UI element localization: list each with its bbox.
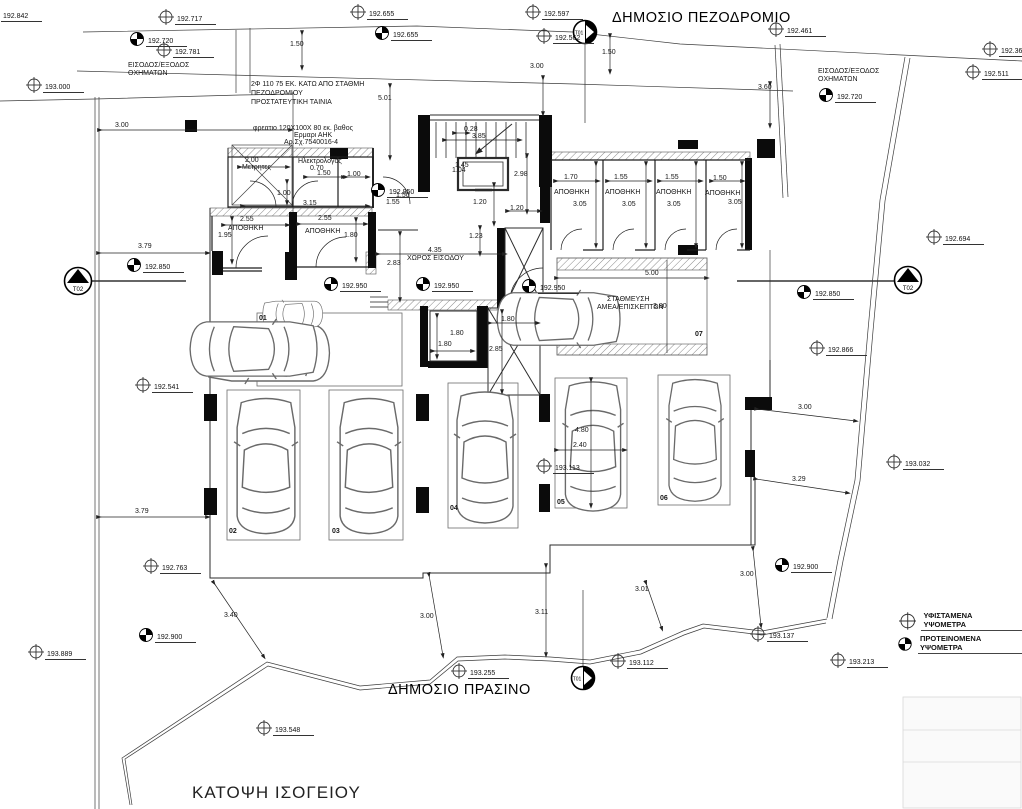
- proposed-elevation-marker: 192.655: [374, 25, 432, 41]
- legend-proposed: ΠΡΟΤΕΙΝΟΜΕΝΑ ΥΨΟΜΕΤΡΑ: [897, 634, 1022, 654]
- existing-elevation-icon: [899, 612, 916, 630]
- title-block-corner: [903, 697, 1021, 808]
- storage-r4-label: ΑΠΟΘΗΚΗ: [705, 190, 740, 198]
- public-green-label: ΔΗΜΟΣΙΟ ΠΡΑΣΙΝΟ: [388, 682, 531, 699]
- storage-r4-depth: 3.05: [728, 199, 742, 207]
- proposed-elevation-marker: 192.950: [415, 276, 473, 292]
- legend-existing: ΥΦΙΣΤΑΜΕΝΑ ΥΨΟΜΕΤΡΑ: [899, 611, 1022, 631]
- dim-123: 1.23: [469, 233, 483, 241]
- dim-120b: 1.20: [510, 205, 524, 213]
- dim-mid-155: 1.55: [386, 199, 400, 207]
- dim-300-bot: 3.00: [420, 613, 434, 621]
- parking-number-04: 04: [450, 505, 458, 513]
- parking-number-07: 07: [695, 331, 703, 339]
- svg-text:T02: T02: [903, 286, 914, 292]
- vehicle-access-left: ΕΙΣΟΔΟΣ/ΕΞΟΔΟΣ: [128, 62, 189, 70]
- pipe-note-2: ΠΕΖΟΔΡΟΜΙΟΥ: [251, 90, 303, 98]
- amea-label-1: ΣΤΑΘΜΕΥΣΗ: [607, 296, 650, 304]
- existing-elevation-marker: 192.717: [158, 9, 216, 25]
- dim-311: 3.11: [535, 609, 548, 617]
- space-length-dim: 4.80: [575, 427, 589, 435]
- proposed-elevation-marker: 192.850: [796, 284, 854, 300]
- existing-elevation-marker: 192.511: [965, 64, 1022, 80]
- benchmark-t02-right: T02: [892, 264, 924, 301]
- proposed-elevation-marker: 192.900: [774, 557, 832, 573]
- dim-340: 3.40: [224, 612, 238, 620]
- storage-r3-label: ΑΠΟΘΗΚΗ: [656, 189, 691, 197]
- pipe-note-3: ΠΡΟΣΤΑΤΕΥΤΙΚΗ ΤΑΙΝΙΑ: [251, 99, 332, 107]
- dim-150-topleft: 1.50: [290, 41, 304, 49]
- storage-r2-label: ΑΠΟΘΗΚΗ: [605, 189, 640, 197]
- dim-lw-285: 2.85: [489, 346, 503, 354]
- existing-elevation-marker: 193.213: [830, 652, 888, 668]
- dim-379b: 3.79: [135, 508, 149, 516]
- svg-text:T01: T01: [573, 677, 582, 683]
- existing-elevation-marker: 193.032: [886, 454, 944, 470]
- vehicle-access-right: ΕΙΣΟΔΟΣ/ΕΞΟΔΟΣ: [818, 68, 879, 76]
- existing-elevation-marker: 193.112: [610, 653, 668, 669]
- page-title: ΚΑΤΟΨΗ ΙΣΟΓΕΙΟΥ: [192, 783, 361, 803]
- floor-plan: T01 T01 T02 T02 192.842 192.717 192.655 …: [0, 0, 1022, 809]
- pipe-note-1: 2Φ 110 75 ΕΚ. ΚΑΤΩ ΑΠΟ ΣΤΑΘΜΗ: [251, 81, 364, 89]
- storage-r1-width: 1.70: [564, 174, 578, 182]
- dim-385: 3.85: [472, 133, 486, 141]
- dim-lw-180b: 1.80: [450, 330, 464, 338]
- dim-329: 3.29: [792, 476, 806, 484]
- dim-379a: 3.79: [138, 243, 152, 251]
- storage-l1-label: ΑΠΟΘΗΚΗ: [228, 225, 263, 233]
- dim-300-topmid: 3.00: [530, 63, 544, 71]
- vehicle-access-left-2: ΟΧΗΜΑΤΩΝ: [128, 70, 168, 78]
- storage-r2-depth: 3.05: [622, 201, 636, 209]
- storage-r1-depth: 3.05: [573, 201, 587, 209]
- dim-elev-104: 1.04: [452, 167, 466, 175]
- existing-elevation-marker: 192.763: [143, 558, 201, 574]
- dim-150-topmid: 1.50: [602, 49, 616, 57]
- storage-r3-width: 1.55: [665, 174, 679, 182]
- proposed-elevation-marker: 192.900: [138, 627, 196, 643]
- existing-elevation-marker: 193.113: [536, 458, 594, 474]
- proposed-elevation-marker: 192.720: [818, 87, 876, 103]
- hall-label: ΧΩΡΟΣ ΕΙΣΟΔΟΥ: [407, 255, 464, 263]
- amea-length: 3.80: [653, 303, 667, 311]
- dim-300-left: 3.00: [115, 122, 129, 130]
- storage-r2-width: 1.55: [614, 174, 628, 182]
- vehicle-access-right-2: ΟΧΗΜΑΤΩΝ: [818, 76, 858, 84]
- parking-number-05: 05: [557, 499, 565, 507]
- cars-final: [190, 290, 724, 534]
- proposed-elevation-marker: 192.950: [323, 276, 381, 292]
- manhole-note-3: Αρ.Σχ.7540016-4: [284, 139, 338, 147]
- dim-300-right: 3.00: [798, 404, 812, 412]
- parking-number-06: 06: [660, 495, 668, 503]
- proposed-elevation-marker: 192.950: [521, 278, 579, 294]
- dim-meters-100: 1.00: [277, 190, 291, 198]
- storage-l2-width: 2.55: [318, 215, 332, 223]
- parking-number-03: 03: [332, 528, 340, 536]
- dim-lw-180c: 1.80: [438, 341, 452, 349]
- benchmark-t02-left: T02: [62, 265, 94, 302]
- parking-number-01: 01: [259, 315, 267, 323]
- existing-elevation-marker: 192.866: [809, 340, 867, 356]
- dim-meters-315: 3.15: [303, 200, 317, 208]
- dim-300-rightbot: 3.00: [740, 571, 754, 579]
- existing-elevation-marker: 192.655: [350, 4, 408, 20]
- existing-elevation-marker: 193.255: [451, 663, 509, 679]
- dim-lw-180a: 1.80: [501, 316, 515, 324]
- storage-l2-label: ΑΠΟΘΗΚΗ: [305, 228, 340, 236]
- existing-elevation-marker: 192.541: [135, 377, 193, 393]
- amea-width: 5.00: [645, 270, 659, 278]
- proposed-elevation-icon: [897, 635, 913, 653]
- hall-width: 4.35: [428, 247, 442, 255]
- existing-elevation-marker: 192.597: [525, 4, 583, 20]
- public-sidewalk-label: ΔΗΜΟΣΙΟ ΠΕΖΟΔΡΟΜΙΟ: [612, 10, 791, 27]
- dim-501: 5.01: [378, 95, 392, 103]
- parking-number-02: 02: [229, 528, 237, 536]
- existing-elevation-marker: 192.694: [926, 229, 984, 245]
- storage-l2-depth: 1.80: [344, 232, 358, 240]
- dim-elec-150: 1.50: [317, 170, 331, 178]
- dim-elec-100: 1.00: [347, 171, 361, 179]
- proposed-elevation-marker: 192.850: [126, 257, 184, 273]
- dim-298: 2.98: [514, 171, 528, 179]
- dim-301: 3.01: [635, 586, 649, 594]
- existing-elevation-marker: 193.548: [256, 720, 314, 736]
- storage-r1-label: ΑΠΟΘΗΚΗ: [554, 189, 589, 197]
- elevator-car: [463, 162, 503, 186]
- benchmark-t01-bottom: T01: [569, 664, 597, 697]
- existing-elevation-marker: 193.137: [750, 626, 808, 642]
- proposed-elevation-icon: [129, 31, 145, 47]
- existing-elevation-marker: 192.562: [536, 28, 594, 44]
- existing-elevation-marker: 193.889: [28, 644, 86, 660]
- storage-r4-width: 1.50: [713, 175, 727, 183]
- existing-elevation-marker: 192.366: [982, 41, 1022, 57]
- existing-elevation-marker: 192.842: [0, 6, 42, 22]
- storage-l1-depth: 1.95: [218, 232, 232, 240]
- space-width-dim: 2.40: [573, 442, 587, 450]
- hall-depth: 2.83: [387, 260, 401, 268]
- existing-elevation-marker: 193.000: [26, 77, 84, 93]
- storage-r3-depth: 3.05: [667, 201, 681, 209]
- proposed-elevation-marker: 192.720: [129, 31, 187, 47]
- storage-l1-width: 2.55: [240, 216, 254, 224]
- svg-text:T02: T02: [73, 287, 84, 293]
- meters-label: Μετρητες: [242, 164, 271, 172]
- dim-360: 3.60: [758, 84, 772, 92]
- dim-120a: 1.20: [473, 199, 487, 207]
